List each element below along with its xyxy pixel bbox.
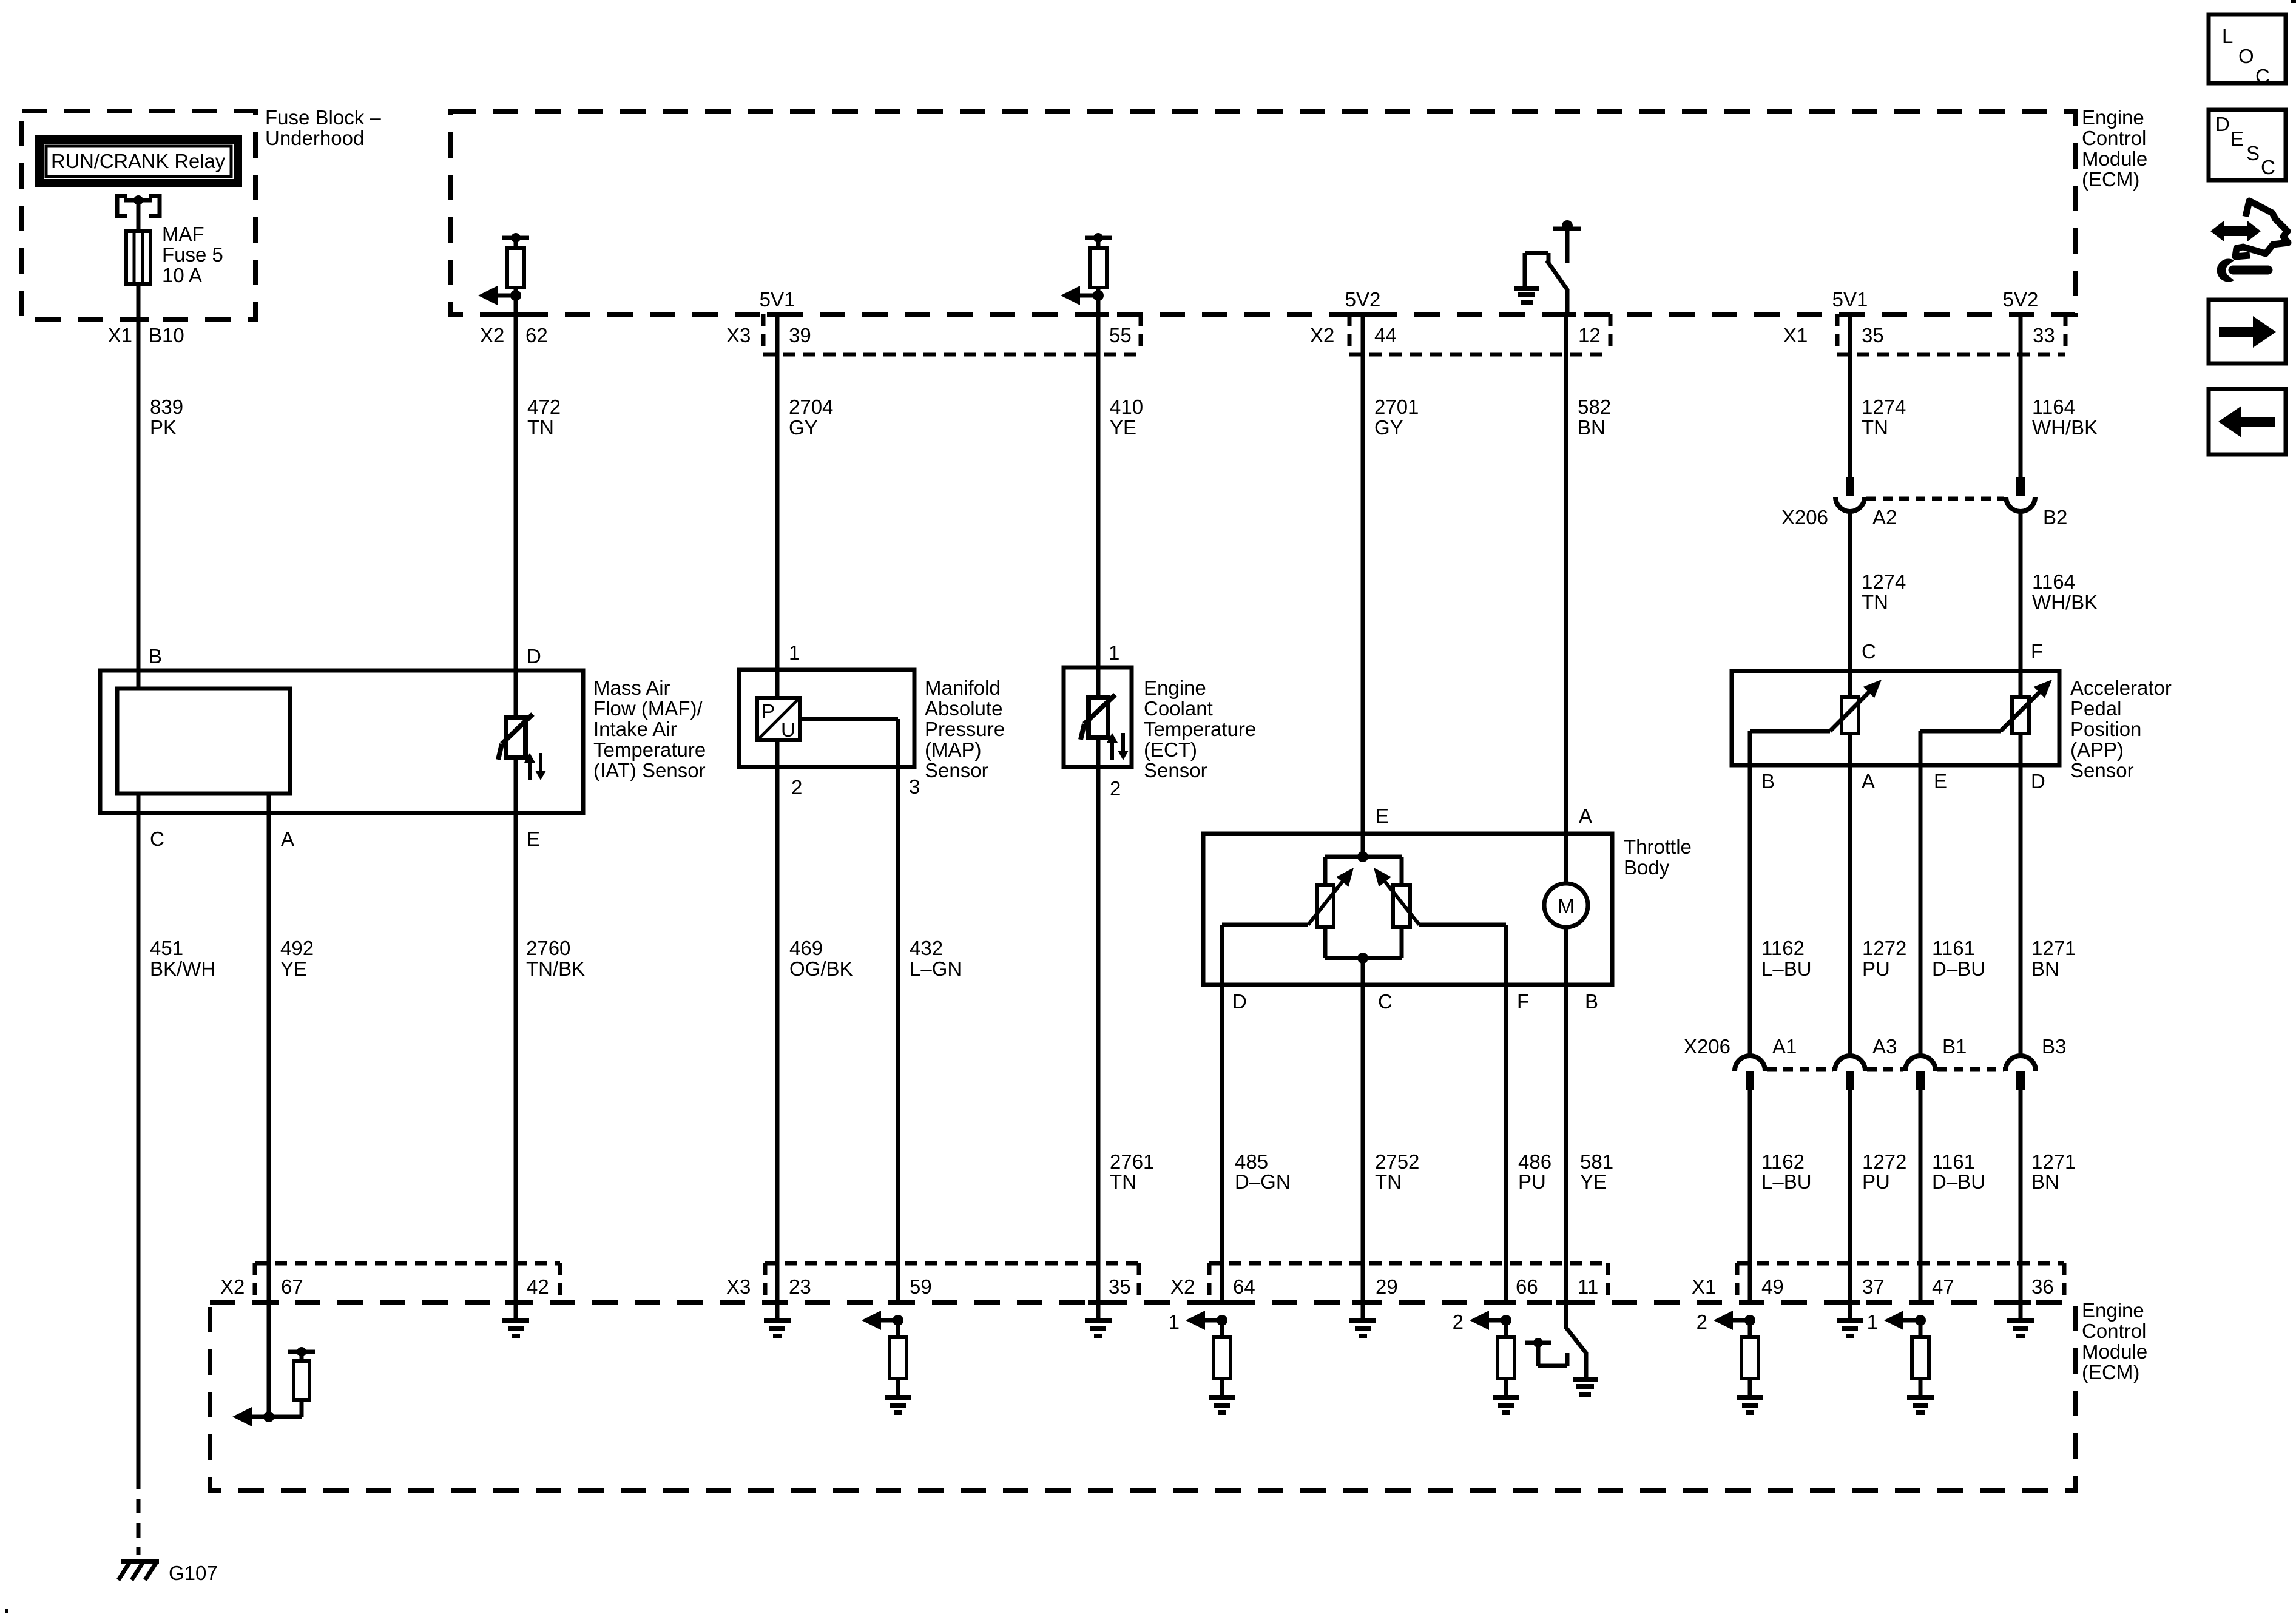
- svg-text:Position: Position: [2070, 718, 2141, 740]
- svg-text:B1: B1: [1942, 1035, 1967, 1058]
- svg-text:A: A: [281, 828, 294, 850]
- svg-text:F: F: [1517, 990, 1529, 1013]
- svg-text:2760: 2760: [526, 937, 570, 959]
- svg-text:M: M: [1558, 895, 1575, 917]
- svg-text:Body: Body: [1624, 856, 1670, 879]
- svg-text:BK/WH: BK/WH: [150, 957, 215, 980]
- svg-text:(IAT) Sensor: (IAT) Sensor: [593, 759, 706, 781]
- svg-text:(ECM): (ECM): [2082, 1361, 2139, 1383]
- svg-text:PK: PK: [150, 416, 177, 439]
- svg-text:1161: 1161: [1932, 1150, 1975, 1173]
- svg-text:2: 2: [1453, 1311, 1464, 1333]
- svg-text:A: A: [1579, 805, 1592, 827]
- svg-text:33: 33: [2033, 324, 2055, 346]
- svg-text:29: 29: [1376, 1275, 1398, 1298]
- svg-text:F: F: [2031, 640, 2043, 663]
- svg-text:3: 3: [909, 775, 920, 798]
- svg-text:47: 47: [1932, 1275, 1954, 1298]
- svg-text:485: 485: [1235, 1150, 1268, 1173]
- svg-text:Flow (MAF)/: Flow (MAF)/: [593, 697, 703, 720]
- svg-text:D–BU: D–BU: [1932, 1170, 1985, 1193]
- svg-text:2761: 2761: [1110, 1150, 1154, 1173]
- svg-text:GY: GY: [1374, 416, 1403, 439]
- svg-text:Module: Module: [2082, 147, 2147, 170]
- svg-text:1162: 1162: [1761, 937, 1805, 959]
- svg-text:35: 35: [1862, 324, 1884, 346]
- svg-text:G107: G107: [169, 1562, 218, 1584]
- svg-text:Engine: Engine: [2082, 106, 2144, 129]
- svg-text:X3: X3: [726, 324, 751, 346]
- svg-text:E: E: [527, 828, 540, 850]
- svg-text:Sensor: Sensor: [2070, 759, 2134, 781]
- svg-text:D: D: [527, 645, 541, 667]
- svg-text:X2: X2: [480, 324, 504, 346]
- svg-text:A2: A2: [1872, 506, 1897, 528]
- svg-text:839: 839: [150, 396, 183, 418]
- svg-text:486: 486: [1518, 1150, 1551, 1173]
- svg-text:X2: X2: [1310, 324, 1334, 346]
- svg-text:1: 1: [1169, 1311, 1180, 1333]
- svg-text:11: 11: [1578, 1275, 1598, 1298]
- svg-text:X3: X3: [726, 1275, 751, 1298]
- svg-text:TN: TN: [1862, 416, 1888, 439]
- svg-text:TN: TN: [527, 416, 554, 439]
- svg-text:472: 472: [527, 396, 561, 418]
- svg-text:RUN/CRANK Relay: RUN/CRANK Relay: [51, 150, 225, 172]
- svg-text:(MAP): (MAP): [925, 738, 982, 761]
- svg-text:12: 12: [1578, 324, 1601, 346]
- svg-text:Intake Air: Intake Air: [593, 718, 677, 740]
- svg-text:Fuse Block –: Fuse Block –: [265, 106, 381, 129]
- svg-text:D–BU: D–BU: [1932, 957, 1985, 980]
- svg-text:Temperature: Temperature: [593, 738, 706, 761]
- svg-text:TN: TN: [1862, 591, 1888, 613]
- svg-text:1: 1: [789, 641, 800, 664]
- svg-text:X1: X1: [108, 324, 132, 346]
- svg-text:GY: GY: [789, 416, 818, 439]
- svg-text:581: 581: [1580, 1150, 1613, 1173]
- svg-text:410: 410: [1110, 396, 1143, 418]
- svg-text:469: 469: [789, 937, 823, 959]
- svg-text:A3: A3: [1872, 1035, 1897, 1058]
- svg-text:X1: X1: [1692, 1275, 1716, 1298]
- svg-text:64: 64: [1233, 1275, 1255, 1298]
- svg-text:E: E: [2230, 127, 2244, 150]
- svg-text:L–BU: L–BU: [1761, 957, 1812, 980]
- svg-text:WH/BK: WH/BK: [2032, 591, 2098, 613]
- svg-text:Underhood: Underhood: [265, 127, 364, 149]
- svg-text:B2: B2: [2043, 506, 2067, 528]
- svg-text:PU: PU: [1518, 1170, 1546, 1193]
- svg-text:OG/BK: OG/BK: [789, 957, 853, 980]
- svg-text:BN: BN: [1578, 416, 1606, 439]
- svg-text:C: C: [1378, 990, 1393, 1013]
- svg-text:E: E: [1376, 805, 1389, 827]
- svg-text:B: B: [1761, 770, 1775, 792]
- svg-text:2701: 2701: [1374, 396, 1419, 418]
- svg-text:YE: YE: [1110, 416, 1136, 439]
- svg-text:492: 492: [280, 937, 314, 959]
- svg-text:23: 23: [789, 1275, 811, 1298]
- svg-text:1162: 1162: [1761, 1150, 1805, 1173]
- svg-text:1271: 1271: [2031, 1150, 2076, 1173]
- svg-text:YE: YE: [1580, 1170, 1607, 1193]
- svg-text:X206: X206: [1684, 1035, 1730, 1058]
- svg-text:67: 67: [281, 1275, 303, 1298]
- svg-text:Engine: Engine: [1144, 677, 1206, 699]
- svg-text:1161: 1161: [1932, 937, 1975, 959]
- svg-text:C: C: [2255, 65, 2270, 87]
- svg-text:2704: 2704: [789, 396, 833, 418]
- svg-text:YE: YE: [280, 957, 307, 980]
- svg-text:59: 59: [910, 1275, 932, 1298]
- svg-text:10 A: 10 A: [162, 264, 202, 286]
- svg-text:Mass Air: Mass Air: [593, 677, 670, 699]
- svg-text:55: 55: [1109, 324, 1132, 346]
- svg-text:D: D: [2215, 113, 2230, 135]
- svg-text:Absolute: Absolute: [925, 697, 1002, 720]
- svg-text:42: 42: [527, 1275, 549, 1298]
- svg-text:PU: PU: [1862, 957, 1890, 980]
- svg-text:Sensor: Sensor: [1144, 759, 1207, 781]
- svg-text:TN: TN: [1110, 1170, 1136, 1193]
- svg-text:Manifold: Manifold: [925, 677, 1001, 699]
- svg-text:1272: 1272: [1862, 937, 1906, 959]
- svg-text:66: 66: [1516, 1275, 1538, 1298]
- svg-text:BN: BN: [2031, 957, 2059, 980]
- svg-text:C: C: [2261, 156, 2275, 178]
- svg-text:Accelerator: Accelerator: [2070, 677, 2172, 699]
- svg-text:P: P: [761, 700, 775, 723]
- svg-text:Pressure: Pressure: [925, 718, 1005, 740]
- svg-text:A: A: [1862, 770, 1875, 792]
- svg-text:(ECM): (ECM): [2082, 168, 2139, 191]
- svg-text:L: L: [2222, 25, 2233, 47]
- svg-text:Control: Control: [2082, 127, 2146, 149]
- svg-text:X2: X2: [220, 1275, 245, 1298]
- svg-text:5V1: 5V1: [1832, 288, 1868, 311]
- svg-text:Pedal: Pedal: [2070, 697, 2121, 720]
- svg-text:E: E: [1934, 770, 1947, 792]
- svg-text:C: C: [1862, 640, 1876, 663]
- svg-text:PU: PU: [1862, 1170, 1890, 1193]
- svg-text:L–BU: L–BU: [1761, 1170, 1812, 1193]
- svg-text:Fuse 5: Fuse 5: [162, 243, 223, 266]
- svg-text:B3: B3: [2042, 1035, 2066, 1058]
- svg-text:X2: X2: [1170, 1275, 1195, 1298]
- svg-text:WH/BK: WH/BK: [2032, 416, 2098, 439]
- svg-text:Throttle: Throttle: [1624, 836, 1692, 858]
- svg-text:1164: 1164: [2032, 570, 2075, 593]
- svg-text:A1: A1: [1772, 1035, 1797, 1058]
- svg-text:1: 1: [1867, 1311, 1878, 1333]
- svg-text:Temperature: Temperature: [1144, 718, 1256, 740]
- svg-text:(ECT): (ECT): [1144, 738, 1197, 761]
- svg-text:Control: Control: [2082, 1320, 2146, 1342]
- svg-text:432: 432: [910, 937, 943, 959]
- svg-text:U: U: [781, 718, 795, 741]
- svg-text:B10: B10: [149, 324, 184, 346]
- svg-text:X1: X1: [1783, 324, 1808, 346]
- svg-text:1274: 1274: [1862, 570, 1906, 593]
- svg-text:D: D: [2031, 770, 2045, 792]
- svg-text:Module: Module: [2082, 1340, 2147, 1363]
- svg-text:1271: 1271: [2031, 937, 2076, 959]
- svg-text:1274: 1274: [1862, 396, 1906, 418]
- svg-text:451: 451: [150, 937, 183, 959]
- svg-text:D–GN: D–GN: [1235, 1170, 1291, 1193]
- svg-text:35: 35: [1109, 1275, 1131, 1298]
- svg-text:B: B: [149, 645, 162, 667]
- svg-text:1164: 1164: [2032, 396, 2075, 418]
- svg-text:36: 36: [2031, 1275, 2054, 1298]
- svg-text:BN: BN: [2031, 1170, 2059, 1193]
- svg-text:X206: X206: [1781, 506, 1828, 528]
- svg-text:Sensor: Sensor: [925, 759, 988, 781]
- svg-text:Engine: Engine: [2082, 1299, 2144, 1322]
- svg-text:582: 582: [1578, 396, 1611, 418]
- svg-text:44: 44: [1374, 324, 1397, 346]
- svg-text:O: O: [2238, 45, 2254, 67]
- svg-text:(APP): (APP): [2070, 738, 2124, 761]
- svg-text:49: 49: [1761, 1275, 1784, 1298]
- svg-text:L–GN: L–GN: [910, 957, 962, 980]
- svg-text:B: B: [1585, 990, 1598, 1013]
- svg-text:2752: 2752: [1375, 1150, 1419, 1173]
- svg-text:D: D: [1232, 990, 1247, 1013]
- svg-text:62: 62: [525, 324, 548, 346]
- svg-text:2: 2: [1110, 777, 1121, 800]
- svg-text:Coolant: Coolant: [1144, 697, 1213, 720]
- svg-text:1: 1: [1109, 641, 1119, 664]
- svg-text:TN/BK: TN/BK: [526, 957, 585, 980]
- svg-text:39: 39: [789, 324, 811, 346]
- svg-text:C: C: [150, 828, 164, 850]
- svg-text:2: 2: [791, 776, 802, 798]
- svg-text:5V1: 5V1: [760, 288, 795, 311]
- svg-text:5V2: 5V2: [1345, 288, 1381, 311]
- svg-text:2: 2: [1697, 1311, 1707, 1333]
- svg-text:S: S: [2246, 142, 2260, 164]
- svg-text:MAF: MAF: [162, 223, 204, 245]
- svg-text:1272: 1272: [1862, 1150, 1906, 1173]
- svg-text:TN: TN: [1375, 1170, 1402, 1193]
- svg-text:5V2: 5V2: [2003, 288, 2039, 311]
- svg-text:37: 37: [1862, 1275, 1885, 1298]
